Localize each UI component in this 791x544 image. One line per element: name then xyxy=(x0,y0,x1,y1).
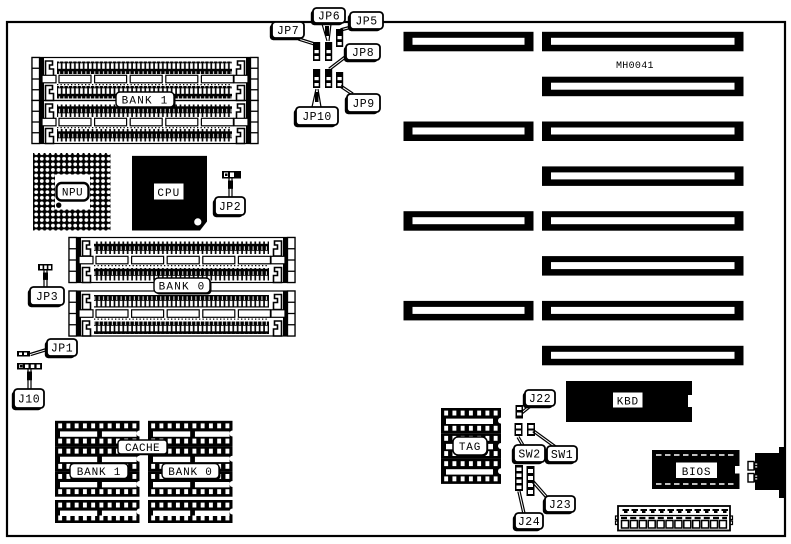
svg-text:JP8: JP8 xyxy=(352,47,374,60)
svg-text:JP7: JP7 xyxy=(277,25,299,38)
svg-text:JP3: JP3 xyxy=(36,291,58,304)
svg-text:BANK 0: BANK 0 xyxy=(168,467,212,479)
svg-text:J24: J24 xyxy=(518,516,540,529)
svg-text:JP2: JP2 xyxy=(219,201,241,214)
svg-text:BANK 1: BANK 1 xyxy=(122,95,169,107)
svg-text:CPU: CPU xyxy=(157,188,180,200)
svg-text:KBD: KBD xyxy=(617,397,639,409)
svg-text:JP1: JP1 xyxy=(51,343,73,356)
svg-text:SW1: SW1 xyxy=(551,449,573,462)
svg-text:TAG: TAG xyxy=(459,442,481,454)
svg-text:SW2: SW2 xyxy=(518,449,540,462)
svg-text:BIOS: BIOS xyxy=(682,467,712,479)
svg-text:JP9: JP9 xyxy=(352,98,374,111)
svg-text:J23: J23 xyxy=(549,499,571,512)
svg-text:J10: J10 xyxy=(18,394,40,407)
svg-text:BANK 1: BANK 1 xyxy=(77,467,121,479)
svg-text:NPU: NPU xyxy=(62,188,83,200)
svg-text:J22: J22 xyxy=(529,393,551,406)
svg-text:CACHE: CACHE xyxy=(125,443,160,455)
svg-text:JP6: JP6 xyxy=(318,11,340,24)
svg-text:MH0041: MH0041 xyxy=(616,61,654,72)
svg-text:JP10: JP10 xyxy=(302,111,332,124)
svg-text:BANK 0: BANK 0 xyxy=(159,281,206,293)
svg-text:JP5: JP5 xyxy=(355,16,377,29)
